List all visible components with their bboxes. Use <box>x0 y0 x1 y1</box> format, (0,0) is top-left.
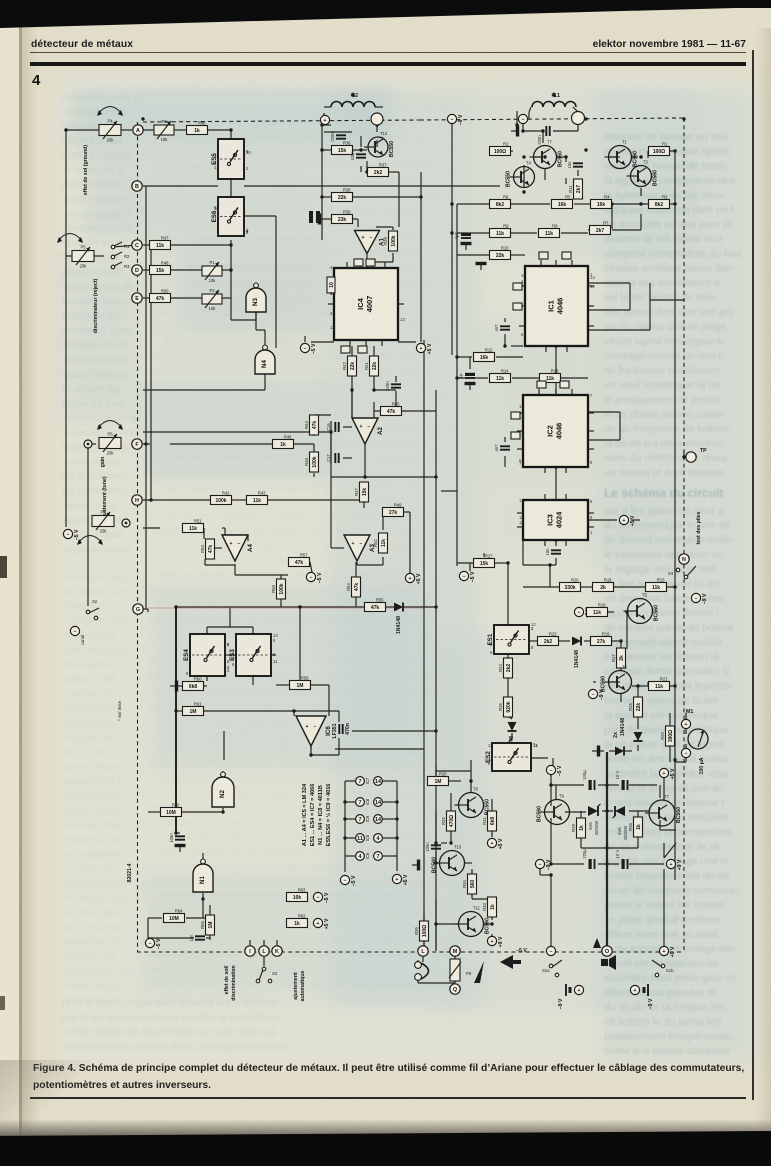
svg-text:R13: R13 <box>551 369 559 374</box>
svg-text:TP: TP <box>700 448 707 454</box>
svg-text:470n: 470n <box>345 723 351 735</box>
svg-text:−5 V: −5 V <box>156 938 162 949</box>
svg-text:T8: T8 <box>473 787 479 792</box>
svg-text:+: + <box>669 862 672 868</box>
svg-text:R48: R48 <box>198 121 206 126</box>
svg-text:IC8: IC8 <box>365 798 370 805</box>
svg-text:7: 7 <box>359 800 362 806</box>
svg-text:N1 ... N4 = IC8 = 4011B: N1 ... N4 = IC8 = 4011B <box>318 785 324 845</box>
svg-text:automatique: automatique <box>300 970 306 1001</box>
svg-text:T5: T5 <box>642 593 648 598</box>
svg-text:ES5,ES6 = ½ IC9 = 4016: ES5,ES6 = ½ IC9 = 4016 <box>325 784 332 847</box>
svg-text:A1 ... A4 = IC5 = LM 324: A1 ... A4 = IC5 = LM 324 <box>302 783 308 846</box>
svg-text:100k: 100k <box>391 235 397 246</box>
svg-text:1M: 1M <box>297 683 304 689</box>
svg-text:2k2: 2k2 <box>374 170 383 176</box>
svg-text:1k: 1k <box>636 824 642 830</box>
svg-text:+: + <box>577 988 580 994</box>
svg-text:ES4: ES4 <box>183 649 190 661</box>
svg-text:10n: 10n <box>545 548 550 556</box>
svg-text:14: 14 <box>375 800 381 806</box>
svg-text:11k: 11k <box>545 231 553 237</box>
svg-text:R16: R16 <box>604 578 612 583</box>
svg-text:gain: gain <box>100 457 106 468</box>
svg-text:100μ: 100μ <box>582 770 587 780</box>
svg-text:12: 12 <box>531 622 536 627</box>
svg-text:27k: 27k <box>389 510 398 516</box>
svg-text:15k: 15k <box>362 488 368 497</box>
svg-text:BC550: BC550 <box>676 807 682 823</box>
svg-text:920k: 920k <box>506 701 512 712</box>
svg-text:22k: 22k <box>372 362 378 371</box>
svg-text:−5 V: −5 V <box>516 948 527 954</box>
svg-text:IC6: IC6 <box>325 726 332 736</box>
svg-text:R38: R38 <box>343 188 351 193</box>
svg-text:+: + <box>316 921 319 927</box>
svg-text:G: G <box>136 607 140 613</box>
svg-text:−: − <box>148 941 151 947</box>
svg-text:16k: 16k <box>558 202 567 208</box>
svg-text:P8: P8 <box>466 971 472 976</box>
svg-text:7: 7 <box>377 854 380 860</box>
svg-text:M1: M1 <box>686 709 693 715</box>
svg-text:1μ: 1μ <box>458 373 463 378</box>
svg-text:M: M <box>453 949 458 955</box>
svg-text:10k: 10k <box>161 137 169 142</box>
svg-text:+9 V: +9 V <box>670 946 676 957</box>
svg-text:R57: R57 <box>300 553 308 558</box>
svg-text:6k8: 6k8 <box>189 684 198 690</box>
svg-text:−5 V: −5 V <box>351 875 357 886</box>
svg-text:N2: N2 <box>219 789 226 797</box>
svg-text:R8: R8 <box>552 224 558 229</box>
svg-text:15k: 15k <box>480 561 489 567</box>
svg-text:+: + <box>360 424 363 430</box>
svg-text:N: N <box>682 557 686 563</box>
svg-text:R49: R49 <box>394 503 402 508</box>
svg-text:14: 14 <box>590 284 595 289</box>
svg-text:BC560: BC560 <box>537 806 543 822</box>
svg-text:Q: Q <box>453 987 457 993</box>
svg-text:A: A <box>136 128 140 134</box>
svg-text:A2: A2 <box>377 426 384 434</box>
svg-text:R3: R3 <box>124 264 130 269</box>
svg-text:S3: S3 <box>272 971 278 976</box>
svg-text:R50: R50 <box>161 289 169 294</box>
svg-text:−: − <box>684 751 687 757</box>
svg-text:14: 14 <box>519 415 524 420</box>
svg-text:−: − <box>316 895 319 901</box>
svg-text:15k: 15k <box>156 268 165 274</box>
svg-text:+: + <box>662 949 665 955</box>
svg-text:R4: R4 <box>604 195 610 200</box>
svg-text:47k: 47k <box>156 296 165 302</box>
svg-text:−9 V: −9 V <box>599 689 605 700</box>
svg-text:IC3: IC3 <box>546 514 555 526</box>
svg-text:100Ω: 100Ω <box>653 149 665 155</box>
svg-text:O: O <box>605 949 609 955</box>
svg-text:1M: 1M <box>435 779 442 785</box>
svg-text:+5 V: +5 V <box>670 768 676 779</box>
svg-text:10 V: 10 V <box>615 849 620 858</box>
svg-text:R44: R44 <box>304 420 309 428</box>
svg-text:390Ω: 390Ω <box>668 730 674 742</box>
svg-text:−: − <box>66 532 69 538</box>
svg-text:10k: 10k <box>209 306 217 311</box>
svg-text:4: 4 <box>359 854 362 860</box>
svg-text:R29: R29 <box>383 236 388 244</box>
svg-text:100Ω: 100Ω <box>422 925 428 937</box>
svg-text:−: − <box>73 629 76 635</box>
svg-text:R20: R20 <box>571 578 579 583</box>
svg-text:100Ω: 100Ω <box>494 149 506 155</box>
svg-text:47k: 47k <box>295 560 304 566</box>
svg-text:−: − <box>549 949 552 955</box>
svg-text:R19: R19 <box>598 603 606 608</box>
svg-text:−: − <box>360 541 363 547</box>
svg-text:−5 V: −5 V <box>470 571 476 582</box>
svg-text:12: 12 <box>519 515 524 520</box>
svg-text:R42: R42 <box>222 491 230 496</box>
svg-text:+: + <box>684 722 687 728</box>
svg-text:N4: N4 <box>261 359 268 367</box>
svg-text:330k: 330k <box>564 585 575 591</box>
svg-text:R14: R14 <box>501 369 509 374</box>
svg-text:1N4148: 1N4148 <box>620 718 626 736</box>
svg-text:+5 V: +5 V <box>416 573 422 584</box>
svg-text:T12: T12 <box>380 131 388 136</box>
svg-text:BC550: BC550 <box>506 171 512 187</box>
svg-text:R46: R46 <box>284 435 292 440</box>
svg-text:22k: 22k <box>338 195 347 201</box>
svg-text:1M: 1M <box>208 922 214 929</box>
svg-text:P5: P5 <box>80 245 86 250</box>
svg-text:* voir texte: * voir texte <box>117 700 122 720</box>
svg-text:25k: 25k <box>100 529 108 534</box>
svg-text:100k: 100k <box>215 498 226 504</box>
svg-text:11k: 11k <box>253 498 261 504</box>
svg-text:14: 14 <box>214 165 219 170</box>
svg-text:13: 13 <box>330 325 335 330</box>
svg-text:225μ: 225μ <box>582 849 587 859</box>
svg-text:R54: R54 <box>346 582 351 590</box>
svg-text:T7: T7 <box>664 794 670 799</box>
svg-text:−: − <box>462 574 465 580</box>
svg-text:T10: T10 <box>454 845 462 850</box>
svg-text:−9 V: −9 V <box>546 859 552 870</box>
svg-text:105n: 105n <box>385 381 390 391</box>
svg-text:R37: R37 <box>379 163 387 168</box>
svg-text:R64: R64 <box>175 909 183 914</box>
svg-text:−: − <box>694 596 697 602</box>
svg-text:7: 7 <box>359 779 362 785</box>
svg-text:T7: T7 <box>547 140 553 145</box>
svg-text:1k: 1k <box>490 904 496 910</box>
svg-text:25k: 25k <box>107 138 115 143</box>
svg-text:T9: T9 <box>559 794 565 799</box>
svg-text:2k2: 2k2 <box>544 639 553 645</box>
svg-text:+: + <box>323 118 326 124</box>
svg-text:100 μA: 100 μA <box>699 757 705 774</box>
svg-text:R55: R55 <box>376 598 384 603</box>
svg-text:47k: 47k <box>371 605 380 611</box>
svg-text:2k7: 2k7 <box>576 185 582 194</box>
svg-text:+9 V: +9 V <box>498 936 504 947</box>
svg-text:82021-4: 82021-4 <box>127 863 133 882</box>
svg-text:11k: 11k <box>496 231 504 237</box>
svg-text:P1: P1 <box>209 260 215 265</box>
svg-text:2k2: 2k2 <box>506 664 512 673</box>
svg-text:ajustement: ajustement <box>293 972 299 1000</box>
svg-text:IC9: IC9 <box>365 815 370 822</box>
svg-text:R12: R12 <box>485 348 493 353</box>
svg-text:R9: R9 <box>503 224 509 229</box>
svg-text:BC550: BC550 <box>389 141 395 157</box>
svg-text:105n: 105n <box>425 842 430 852</box>
svg-text:16k: 16k <box>597 202 606 208</box>
svg-text:S1a: S1a <box>542 968 550 973</box>
svg-text:P2: P2 <box>209 288 215 293</box>
svg-text:discrimination: discrimination <box>231 965 237 1000</box>
svg-text:11k: 11k <box>546 376 554 382</box>
svg-text:S1b: S1b <box>666 968 674 973</box>
svg-text:11k: 11k <box>655 684 663 690</box>
svg-text:13: 13 <box>400 317 405 322</box>
svg-text:−: − <box>303 346 306 352</box>
svg-text:47k: 47k <box>387 409 396 415</box>
svg-text:10k: 10k <box>209 278 217 283</box>
svg-text:1N4148: 1N4148 <box>396 616 402 634</box>
svg-text:13: 13 <box>488 757 493 762</box>
svg-text:T11: T11 <box>473 906 481 911</box>
svg-text:R25: R25 <box>498 702 503 710</box>
svg-text:−: − <box>343 878 346 884</box>
svg-text:R65: R65 <box>200 920 205 928</box>
svg-text:10M: 10M <box>169 916 179 922</box>
svg-text:+: + <box>306 724 309 730</box>
svg-text:R48: R48 <box>161 261 169 266</box>
svg-text:R6: R6 <box>503 195 509 200</box>
svg-text:R3: R3 <box>662 195 668 200</box>
svg-text:R52: R52 <box>373 538 378 546</box>
svg-text:R42: R42 <box>342 361 347 369</box>
svg-text:220n: 220n <box>537 135 542 145</box>
svg-text:BC560: BC560 <box>653 170 659 186</box>
svg-text:+: + <box>490 841 493 847</box>
svg-text:10n: 10n <box>189 934 194 942</box>
svg-text:C17: C17 <box>326 453 331 461</box>
svg-text:+: + <box>490 939 493 945</box>
svg-text:−5 V: −5 V <box>317 572 323 583</box>
svg-text:+: + <box>395 877 398 883</box>
svg-text:+5 V: +5 V <box>324 918 330 929</box>
svg-text:+: + <box>662 771 665 777</box>
svg-text:P4: P4 <box>107 119 113 124</box>
svg-text:+5 V: +5 V <box>403 874 409 885</box>
svg-text:8k2: 8k2 <box>655 202 664 208</box>
svg-text:−: − <box>591 692 594 698</box>
svg-text:22k: 22k <box>496 253 505 259</box>
svg-text:R31: R31 <box>482 816 487 824</box>
svg-text:R11: R11 <box>568 185 573 193</box>
svg-text:4n7: 4n7 <box>494 444 499 452</box>
svg-text:R61: R61 <box>194 702 202 707</box>
svg-text:R15: R15 <box>657 578 665 583</box>
svg-text:470Ω: 470Ω <box>449 815 455 827</box>
svg-text:4n7: 4n7 <box>494 324 499 332</box>
svg-text:E: E <box>135 296 139 302</box>
svg-text:11k: 11k <box>189 526 197 532</box>
svg-text:10n: 10n <box>567 161 572 169</box>
svg-text:B: B <box>135 184 139 190</box>
svg-text:−9 V: −9 V <box>558 998 564 1009</box>
svg-text:BC560: BC560 <box>633 151 639 167</box>
svg-text:R21: R21 <box>660 677 668 682</box>
svg-text:R47: R47 <box>161 236 169 241</box>
svg-text:100k: 100k <box>312 456 318 467</box>
svg-text:−: − <box>314 724 317 730</box>
svg-text:K: K <box>275 949 279 955</box>
svg-text:+9 V: +9 V <box>677 859 683 870</box>
svg-text:effet de sol (ground): effet de sol (ground) <box>83 145 89 195</box>
svg-text:−: − <box>521 117 524 123</box>
svg-text:IC4: IC4 <box>356 297 365 310</box>
svg-text:10k: 10k <box>293 895 302 901</box>
svg-text:R39: R39 <box>343 210 351 215</box>
svg-text:14: 14 <box>375 817 381 823</box>
svg-text:22k: 22k <box>350 362 356 371</box>
svg-text:47k: 47k <box>208 545 214 554</box>
svg-text:11k: 11k <box>593 610 601 616</box>
svg-text:−: − <box>577 610 580 616</box>
svg-text:R1: R1 <box>662 142 668 147</box>
svg-text:R32: R32 <box>441 816 446 824</box>
svg-text:47k: 47k <box>312 421 318 430</box>
svg-text:R5: R5 <box>565 195 571 200</box>
svg-text:L1: L1 <box>554 93 560 99</box>
svg-text:+: + <box>419 346 422 352</box>
svg-text:1k: 1k <box>579 825 585 831</box>
svg-text:5V6: 5V6 <box>588 822 593 830</box>
svg-text:S2: S2 <box>92 599 98 604</box>
svg-text:R53: R53 <box>200 544 205 552</box>
svg-text:L2: L2 <box>352 93 358 99</box>
svg-text:IC7: IC7 <box>365 777 370 784</box>
svg-text:10: 10 <box>521 273 526 278</box>
svg-text:1N4148: 1N4148 <box>574 650 580 668</box>
svg-text:T4: T4 <box>526 161 532 166</box>
svg-text:1k: 1k <box>280 442 286 448</box>
svg-text:+: + <box>622 518 625 524</box>
svg-text:LF351: LF351 <box>332 723 338 738</box>
svg-text:R24: R24 <box>498 663 503 671</box>
svg-text:−9 V: −9 V <box>648 998 654 1009</box>
svg-text:10: 10 <box>329 282 335 288</box>
svg-text:ES1 ... ES4 = IC7 = 4066: ES1 ... ES4 = IC7 = 4066 <box>310 784 316 847</box>
svg-text:4046: 4046 <box>556 298 565 315</box>
svg-text:T3: T3 <box>643 160 649 165</box>
svg-text:12: 12 <box>519 520 524 525</box>
svg-text:IC5: IC5 <box>365 834 370 841</box>
svg-text:11: 11 <box>273 659 278 664</box>
svg-text:R27: R27 <box>485 554 493 559</box>
svg-text:IC1: IC1 <box>547 300 556 312</box>
svg-text:15k: 15k <box>338 148 347 154</box>
svg-text:−: − <box>549 768 552 774</box>
svg-text:T1: T1 <box>622 140 628 145</box>
svg-text:1M: 1M <box>190 709 197 715</box>
svg-text:S4: S4 <box>668 571 674 576</box>
svg-text:A4: A4 <box>247 543 254 551</box>
svg-text:R45: R45 <box>392 402 400 407</box>
svg-text:ES6: ES6 <box>211 210 218 222</box>
svg-text:R70: R70 <box>172 803 180 808</box>
svg-text:400mW: 400mW <box>594 821 599 835</box>
svg-text:IC6: IC6 <box>365 852 370 859</box>
svg-text:R63: R63 <box>298 888 306 893</box>
svg-text:H: H <box>135 498 139 504</box>
svg-text:11: 11 <box>357 836 363 842</box>
svg-text:C: C <box>135 243 139 249</box>
svg-text:105n: 105n <box>169 833 174 843</box>
svg-text:BC560: BC560 <box>485 918 491 934</box>
svg-text:R1: R1 <box>124 244 130 249</box>
svg-text:10M: 10M <box>166 810 176 816</box>
svg-text:2k: 2k <box>619 655 625 661</box>
svg-text:22k: 22k <box>636 703 642 712</box>
svg-text:220n: 220n <box>330 132 335 142</box>
svg-text:R2: R2 <box>124 254 130 259</box>
svg-text:+5 V: +5 V <box>630 515 636 526</box>
svg-text:N1: N1 <box>199 875 206 883</box>
svg-text:12: 12 <box>214 153 219 158</box>
svg-text:test des piles: test des piles <box>696 511 702 544</box>
svg-text:P6: P6 <box>107 432 113 437</box>
svg-text:R19: R19 <box>602 632 610 637</box>
svg-text:R35: R35 <box>414 926 419 934</box>
svg-text:10 V: 10 V <box>615 770 620 779</box>
svg-text:C16: C16 <box>326 422 331 430</box>
svg-text:R48: R48 <box>304 457 309 465</box>
svg-text:BC560: BC560 <box>654 605 660 621</box>
svg-text:BC550: BC550 <box>558 151 564 167</box>
svg-text:13: 13 <box>273 633 278 638</box>
svg-text:+: + <box>408 576 411 582</box>
svg-text:23k: 23k <box>338 217 347 223</box>
svg-text:11k: 11k <box>156 243 164 249</box>
svg-text:4024: 4024 <box>555 511 564 529</box>
svg-text:16k: 16k <box>480 355 489 361</box>
svg-text:5V6: 5V6 <box>617 827 622 835</box>
svg-text:25k: 25k <box>80 264 88 269</box>
svg-text:−5 V: −5 V <box>311 343 317 354</box>
svg-text:12: 12 <box>488 743 493 748</box>
svg-text:R2: R2 <box>503 142 509 147</box>
svg-text:−9 V: −9 V <box>702 593 708 604</box>
svg-text:P3: P3 <box>161 119 167 124</box>
svg-text:R29: R29 <box>571 823 576 831</box>
svg-text:+: + <box>352 541 355 547</box>
svg-text:−: − <box>450 117 453 123</box>
svg-text:100n: 100n <box>350 151 355 161</box>
svg-text:4μ7: 4μ7 <box>454 232 459 240</box>
svg-text:14: 14 <box>533 743 538 748</box>
svg-text:discriminateur (reject): discriminateur (reject) <box>93 278 99 333</box>
svg-text:IC2: IC2 <box>546 425 555 437</box>
svg-text:+: + <box>633 988 636 994</box>
svg-text:D: D <box>135 268 139 274</box>
svg-text:T6: T6 <box>622 665 628 670</box>
